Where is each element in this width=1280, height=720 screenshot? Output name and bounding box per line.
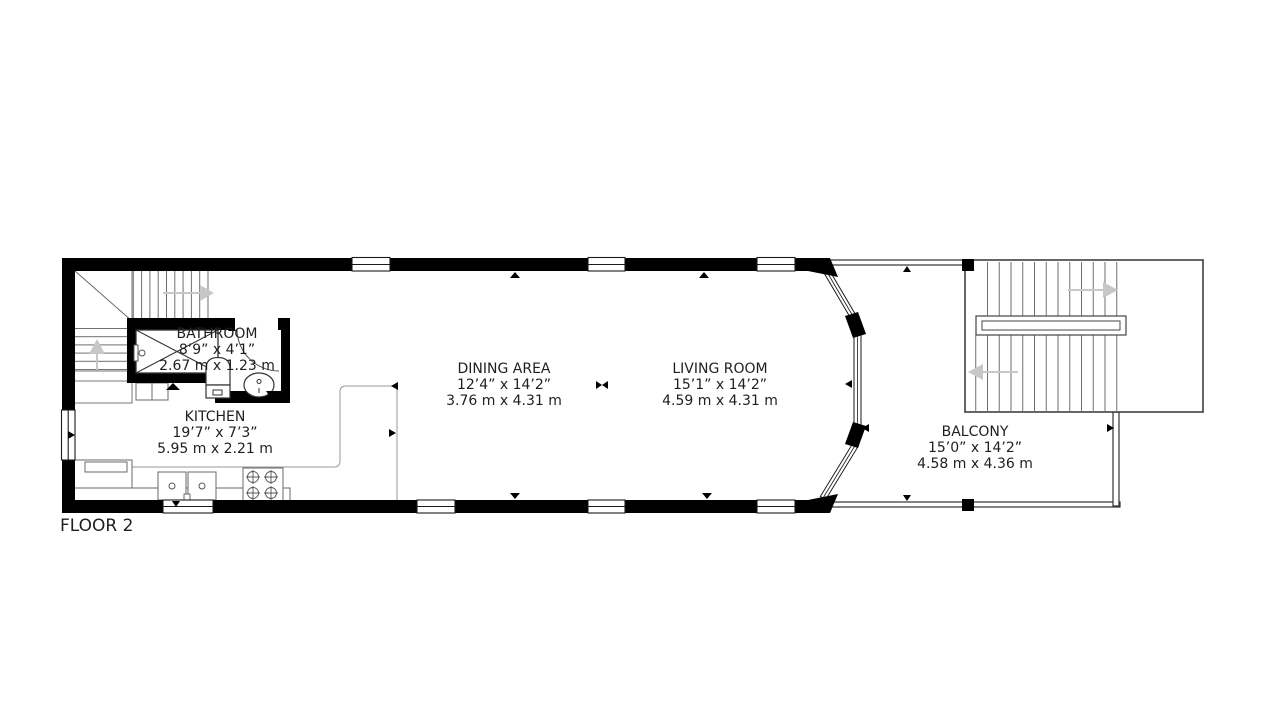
room-dimensions-imperial: 19’7” x 7’3”: [157, 425, 273, 441]
room-dimensions-metric: 4.59 m x 4.31 m: [662, 393, 778, 409]
room-name: BATHROOM: [159, 326, 275, 342]
exterior-staircase: [965, 260, 1203, 412]
room-label-kitchen: KITCHEN 19’7” x 7’3” 5.95 m x 2.21 m: [157, 409, 273, 457]
room-dimensions-metric: 3.76 m x 4.31 m: [446, 393, 562, 409]
room-name: LIVING ROOM: [662, 361, 778, 377]
room-dimensions-imperial: 8’9” x 4’1”: [159, 342, 275, 358]
room-label-living-room: LIVING ROOM 15’1” x 14’2” 4.59 m x 4.31 …: [662, 361, 778, 409]
floorplan-page: BATHROOM 8’9” x 4’1” 2.67 m x 1.23 m KIT…: [0, 0, 1280, 720]
room-name: BALCONY: [917, 424, 1033, 440]
room-dimensions-metric: 2.67 m x 1.23 m: [159, 358, 275, 374]
room-label-balcony: BALCONY 15’0” x 14’2” 4.58 m x 4.36 m: [917, 424, 1033, 472]
room-label-bathroom: BATHROOM 8’9” x 4’1” 2.67 m x 1.23 m: [159, 326, 275, 374]
center-mark: [596, 381, 608, 389]
room-dimensions-imperial: 15’0” x 14’2”: [917, 440, 1033, 456]
room-name: DINING AREA: [446, 361, 562, 377]
room-dimensions-metric: 4.58 m x 4.36 m: [917, 456, 1033, 472]
bay-window: [808, 258, 866, 513]
floor-title: FLOOR 2: [60, 516, 133, 536]
room-name: KITCHEN: [157, 409, 273, 425]
room-dimensions-imperial: 15’1” x 14’2”: [662, 377, 778, 393]
room-dimensions-metric: 5.95 m x 2.21 m: [157, 441, 273, 457]
room-dimensions-imperial: 12’4” x 14’2”: [446, 377, 562, 393]
room-label-dining-area: DINING AREA 12’4” x 14’2” 3.76 m x 4.31 …: [446, 361, 562, 409]
stove: [243, 468, 283, 502]
